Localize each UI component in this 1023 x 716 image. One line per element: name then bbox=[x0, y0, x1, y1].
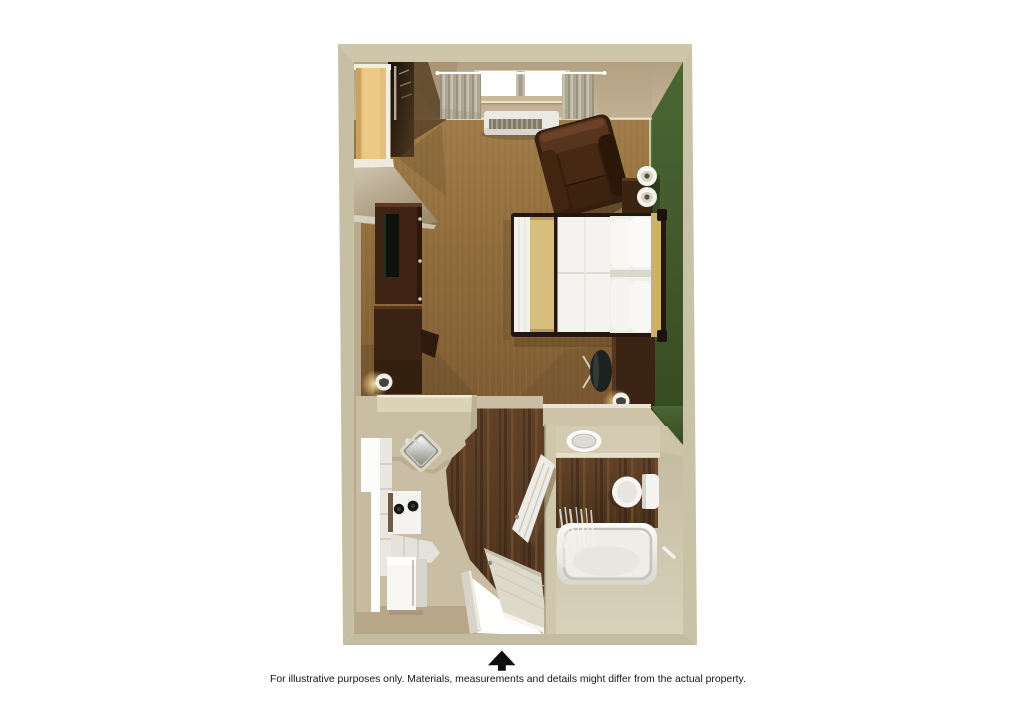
svg-text:For illustrative purposes only: For illustrative purposes only. Material… bbox=[270, 674, 746, 685]
